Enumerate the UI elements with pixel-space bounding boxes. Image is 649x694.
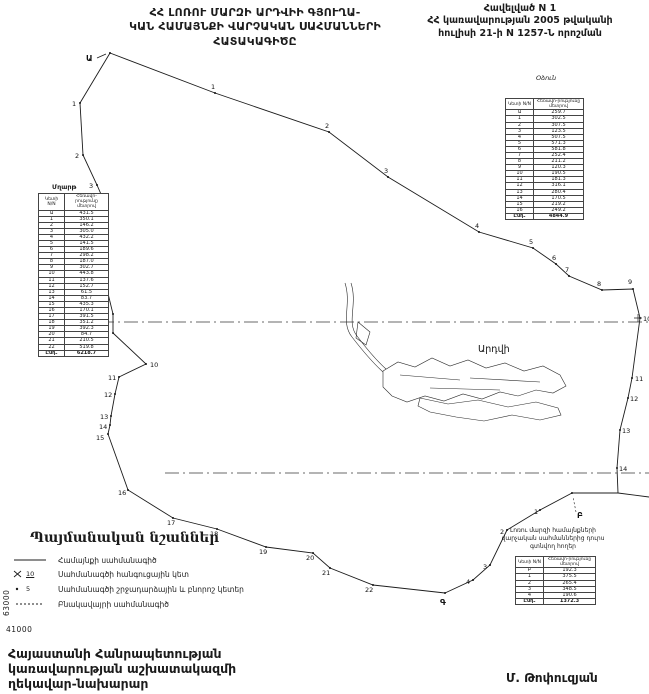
grid-coordinate-vertical: 63000 [2, 590, 11, 616]
boundary-point-10-10 [145, 363, 147, 365]
point-label-37-14: 14 [619, 465, 627, 473]
legend-item-community-boundary: Համայնքի սահմանագիծ [12, 554, 157, 566]
boundary-point-16-16 [127, 489, 129, 491]
point-label-16-16: 16 [118, 489, 126, 497]
turning-point-icon: 5 [12, 584, 50, 594]
boundary-point-32-9 [632, 288, 634, 290]
text-line: կառավարության աշխատակազմի [8, 662, 236, 677]
point-label-17-17: 17 [167, 519, 175, 527]
boundary-point-29-6 [555, 263, 557, 265]
point-label-34-11: 11 [635, 375, 643, 383]
text-line: վարչական սահմաններից դուրս [488, 535, 618, 543]
point-label-30-7: 7 [565, 266, 569, 274]
point-label-21-21: 21 [322, 569, 330, 577]
junction-point-number: 10 [26, 570, 34, 578]
legend-item-label: Համայնքի սահմանագիծ [58, 556, 157, 565]
total-row: Ընդ. 4844.9 [506, 213, 584, 219]
point-label-27-4: 4 [475, 222, 479, 230]
appendix-note: Հավելված N 1ՀՀ կառավարության 2005 թվական… [392, 3, 648, 40]
village-west-patch [356, 322, 370, 345]
boundary-point-41-3 [489, 564, 491, 566]
grid-coordinate-horizontal: 41000 [6, 625, 32, 634]
boundary-point-3-3 [96, 184, 98, 186]
boundary-point-23-Գ [444, 592, 446, 594]
legend-item-label: Սահմանագծի հանգուցային կետ [58, 570, 189, 579]
village-inner-roads [400, 375, 540, 390]
boundary-point-39-1 [539, 509, 541, 511]
legend-title: Պայմանական նշաններ [30, 530, 219, 546]
total-value: 1372.3 [544, 598, 596, 604]
point-b-leader [573, 497, 576, 512]
total-label: Ընդ. [506, 213, 534, 219]
text-line: ԿԱՆ ՀԱՄԱՅՆՔԻ ՎԱՐՉԱԿԱՆ ՍԱՀՄԱՆՆԵՐԻ [105, 20, 405, 34]
point-label-42-4: 4 [466, 578, 470, 586]
legend-item-turning-point: 5 Սահմանագծի շրջադարձային և բնորոշ կետեր [12, 583, 244, 595]
column-header-point: Կետի N/N [506, 99, 534, 110]
boundary-point-30-7 [568, 275, 570, 277]
table-label-mghart: Մղարթ [52, 183, 76, 191]
text-line: Հայաստանի Հանրապետության [8, 647, 236, 662]
point-label-19-19: 19 [259, 548, 267, 556]
boundary-point-31-8 [601, 289, 603, 291]
point-label-23-Գ: Գ [440, 598, 446, 607]
boundary-west-mghart [80, 53, 445, 593]
settlement-name-label: Արդվի [478, 344, 510, 355]
outside-table-title: Լոռու մարզի համայնքներիվարչական սահմաննե… [488, 527, 618, 551]
boundary-point-2-2 [82, 154, 84, 156]
boundary-point-36-13 [619, 429, 621, 431]
column-header-distance: Հեռավո-րությունը մետրով [65, 194, 109, 211]
text-line: Հավելված N 1 [392, 3, 648, 15]
boundary-point-26-3 [387, 176, 389, 178]
point-label-11-11: 11 [108, 374, 116, 382]
total-value: 6218.7 [65, 350, 109, 356]
text-line: ՀՀ կառավարության 2005 թվականի [392, 15, 648, 27]
village-block-upper [383, 358, 566, 402]
point-label-3-3: 3 [89, 182, 93, 190]
total-row: Ընդ. 6218.7 [39, 350, 109, 356]
odzun-distance-table: Կետի N/N Հեռավո-րությունը մետրով Ա259.71… [505, 98, 584, 220]
point-label-12-12: 12 [104, 391, 112, 399]
point-label-26-3: 3 [384, 167, 388, 175]
boundary-east-stub [618, 493, 649, 497]
boundary-point-13-13 [110, 415, 112, 417]
point-label-39-1: 1 [534, 508, 538, 516]
boundary-point-38-Բ [571, 492, 573, 494]
column-header-distance: Հեռավո-րությունը մետրով [534, 99, 584, 110]
boundary-point-0-Ա [109, 52, 111, 54]
boundary-point-25-2 [328, 131, 330, 133]
community-boundary-line-icon [12, 556, 50, 564]
total-value: 4844.9 [534, 213, 584, 219]
boundary-point-15-15 [107, 433, 109, 435]
point-label-22-22: 22 [365, 586, 373, 594]
table-label-odzun: Օձուն [536, 74, 556, 82]
point-label-0-Ա: Ա [86, 54, 93, 63]
point-label-33-10: 10 [643, 315, 649, 323]
boundary-point-37-14 [616, 467, 618, 469]
settlement-boundary-line-icon [12, 600, 50, 608]
boundary-point-12-12 [114, 393, 116, 395]
point-label-28-5: 5 [529, 238, 533, 246]
total-label: Ընդ. [39, 350, 65, 356]
plan-title: ՀՀ ԼՈՌՈՒ ՄԱՐԶԻ ԱՐԴՎԻԻ ԳՅՈՒՂԱ-ԿԱՆ ՀԱՄԱՅՆՔ… [105, 6, 405, 49]
boundary-point-28-5 [532, 247, 534, 249]
boundary-point-24-1 [214, 92, 216, 94]
legend-item-junction-point: 10 Սահմանագծի հանգուցային կետ [12, 568, 189, 580]
point-label-25-2: 2 [325, 122, 329, 130]
point-label-38-Բ: Բ [577, 511, 583, 520]
column-header-point: Կետի N/N [39, 194, 65, 211]
point-label-32-9: 9 [628, 278, 632, 286]
mghart-distance-table: Կետի N/N Հեռավո-րությունը մետրով Ա431.51… [38, 193, 109, 357]
text-line: գտնվող հողեր [488, 543, 618, 551]
boundary-point-9-9 [112, 332, 114, 334]
boundary-point-42-4 [472, 579, 474, 581]
outside-distance-table: Կետի N/N Հեռավո-րությունը մետրով Բ192.31… [515, 556, 596, 605]
boundary-point-8-8 [112, 313, 114, 315]
signature-name: Մ. Թոփուզյան [506, 671, 598, 685]
point-label-35-12: 12 [630, 395, 638, 403]
village-stream-1 [345, 283, 383, 372]
approving-authority: Հայաստանի Հանրապետությանկառավարության աշ… [8, 647, 236, 691]
point-label-13-13: 13 [100, 413, 108, 421]
legend-item-label: Բնակավայրի սահմանագիծ [58, 600, 169, 609]
point-label-31-8: 8 [597, 280, 601, 288]
text-line: Լոռու մարզի համայնքների [488, 527, 618, 535]
text-line: հուլիսի 21-ի N 1257-Ն որոշման [392, 28, 648, 40]
point-label-15-15: 15 [96, 434, 104, 442]
point-label-14-14: 14 [99, 423, 107, 431]
total-row: Ընդ. 1372.3 [516, 598, 596, 604]
text-line: ՀՀ ԼՈՌՈՒ ՄԱՐԶԻ ԱՐԴՎԻԻ ԳՅՈՒՂԱ- [105, 6, 405, 20]
point-label-29-6: 6 [552, 254, 556, 262]
junction-point-icon: 10 [12, 569, 50, 579]
point-label-2-2: 2 [75, 152, 79, 160]
point-a-arrow [97, 54, 106, 58]
column-header-point: Կետի N/N [516, 557, 544, 568]
total-label: Ընդ. [516, 598, 544, 604]
village-block-lower [418, 398, 561, 421]
column-header-distance: Հեռավո-րությունը մետրով [544, 557, 596, 568]
point-label-10-10: 10 [150, 361, 158, 369]
point-label-1-1: 1 [72, 100, 76, 108]
point-label-24-1: 1 [211, 83, 215, 91]
boundary-point-34-11 [631, 377, 633, 379]
text-line: ղեկավար-նախարար [8, 677, 236, 692]
legend-item-settlement-boundary: Բնակավայրի սահմանագիծ [12, 598, 169, 610]
boundary-point-14-14 [109, 424, 111, 426]
boundary-point-1-1 [79, 102, 81, 104]
point-label-41-3: 3 [483, 563, 487, 571]
boundary-point-35-12 [627, 397, 629, 399]
point-label-20-20: 20 [306, 554, 314, 562]
boundary-point-11-11 [118, 376, 120, 378]
text-line: ՀԱՏԱԿԱԳԻԾԸ [105, 35, 405, 49]
boundary-point-33-10 [639, 317, 641, 319]
point-label-36-13: 13 [622, 427, 630, 435]
turning-point-number: 5 [26, 585, 30, 593]
boundary-point-27-4 [478, 231, 480, 233]
village-stream-2 [351, 283, 386, 369]
legend-item-label: Սահմանագծի շրջադարձային և բնորոշ կետեր [58, 585, 244, 594]
